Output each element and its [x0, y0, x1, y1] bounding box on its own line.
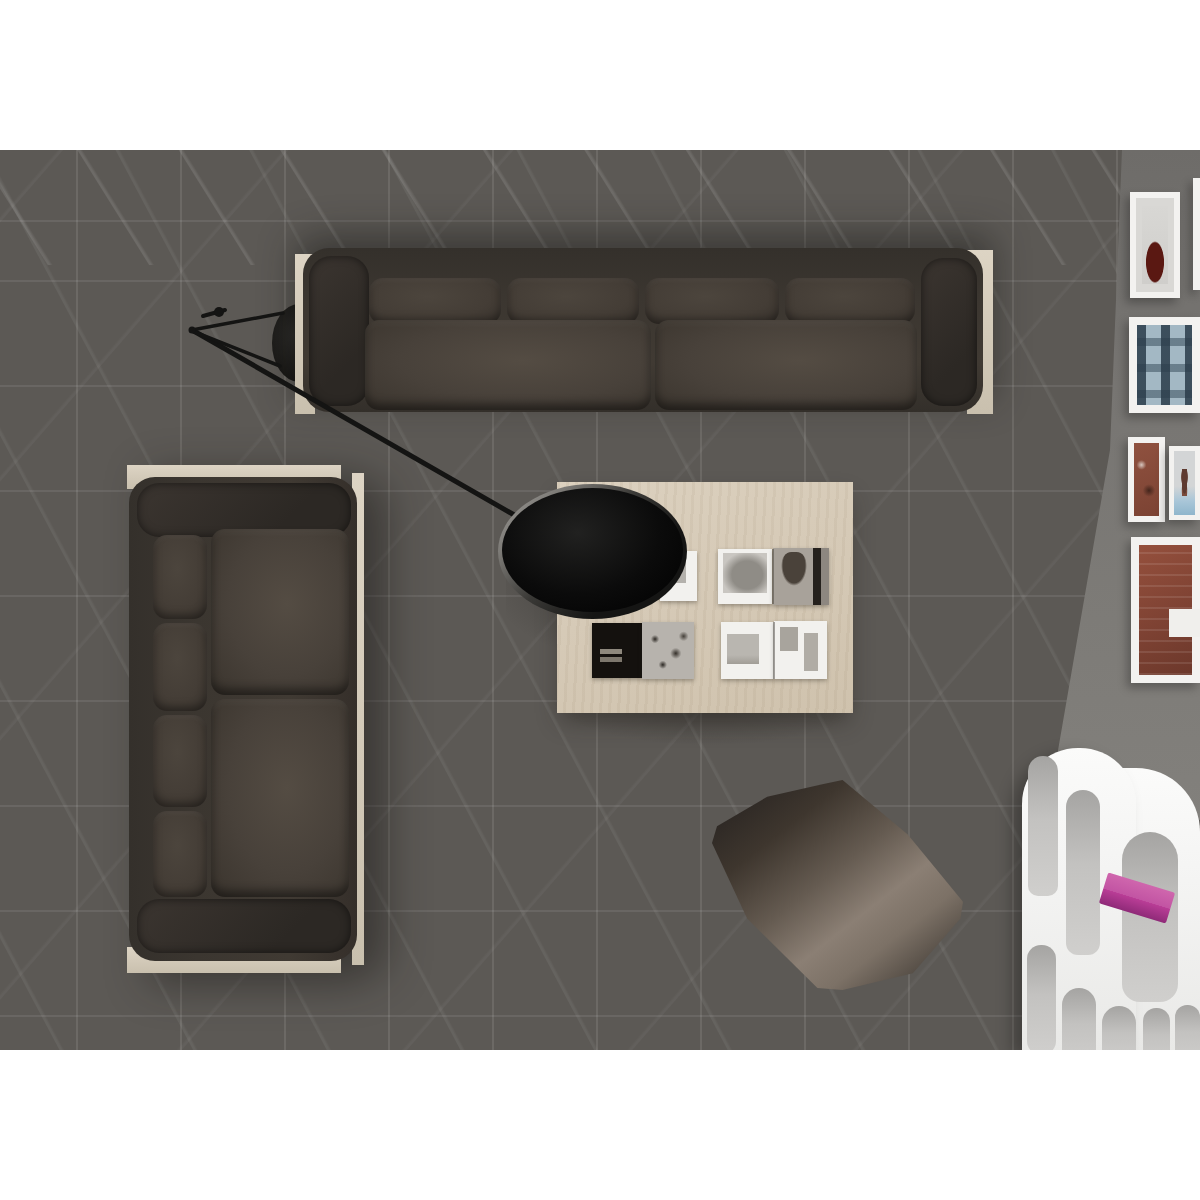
book-photo-figure [780, 627, 798, 651]
picture-frame-figure [1169, 446, 1200, 520]
living-room-photo [0, 150, 1200, 1050]
book-logo-text [600, 657, 622, 662]
seat-cushion [365, 320, 651, 410]
artwork-blue-building [1137, 325, 1192, 405]
back-cushion [153, 715, 207, 807]
picture-frame-brick-building [1131, 537, 1200, 683]
book-page [774, 621, 827, 679]
artwork-white-notch [1169, 609, 1200, 637]
book-photo-hair [781, 552, 807, 586]
shelf-cell [1143, 1008, 1170, 1050]
sofa-top [295, 248, 995, 420]
back-cushion [645, 278, 779, 324]
shelf-unit [1022, 742, 1200, 1050]
shelf-cell [1027, 945, 1056, 1050]
shelf-cell [1028, 756, 1058, 896]
lamp-shade-face [502, 488, 683, 612]
book-photo-mountain [723, 553, 767, 593]
book-page [718, 549, 772, 604]
sofa-armrest-bottom [137, 899, 351, 953]
seat-cushion [211, 699, 349, 897]
book-photo-tower [804, 633, 818, 671]
back-cushion [785, 278, 915, 324]
seat-cushion [211, 529, 349, 695]
shelf-cell [1175, 1005, 1200, 1050]
lamp-shade [498, 484, 687, 619]
sofa-armrest-right [921, 258, 977, 406]
book-page [642, 622, 694, 679]
picture-frame-blue-building [1129, 317, 1200, 413]
shelf-cell [1102, 1006, 1136, 1050]
back-cushion [153, 623, 207, 711]
book-spine [772, 549, 774, 604]
picture-frame-red-object [1130, 192, 1180, 298]
book-photo-collage [642, 622, 694, 679]
book-photo-building [727, 634, 759, 664]
photo-page [0, 0, 1200, 1200]
book-spine [773, 622, 775, 679]
back-cushion [153, 811, 207, 897]
shelf-cell [1066, 790, 1100, 955]
book-page-black [592, 623, 642, 678]
artwork-red-object [1142, 206, 1168, 284]
back-cushion [507, 278, 639, 324]
book-page [773, 548, 829, 605]
book-logo-text [600, 649, 622, 654]
sofa-left [125, 465, 365, 973]
picture-frame-edge [1193, 178, 1200, 290]
seat-cushion [655, 320, 917, 410]
artwork-figure [1174, 451, 1195, 515]
back-cushion [369, 278, 501, 324]
sofa-armrest-left [309, 256, 369, 406]
artwork-brick-figures [1134, 443, 1159, 516]
shelf-cell [1062, 988, 1096, 1050]
back-cushion [153, 535, 207, 619]
book-page [721, 622, 774, 679]
picture-frame-brick-figures [1128, 437, 1165, 522]
